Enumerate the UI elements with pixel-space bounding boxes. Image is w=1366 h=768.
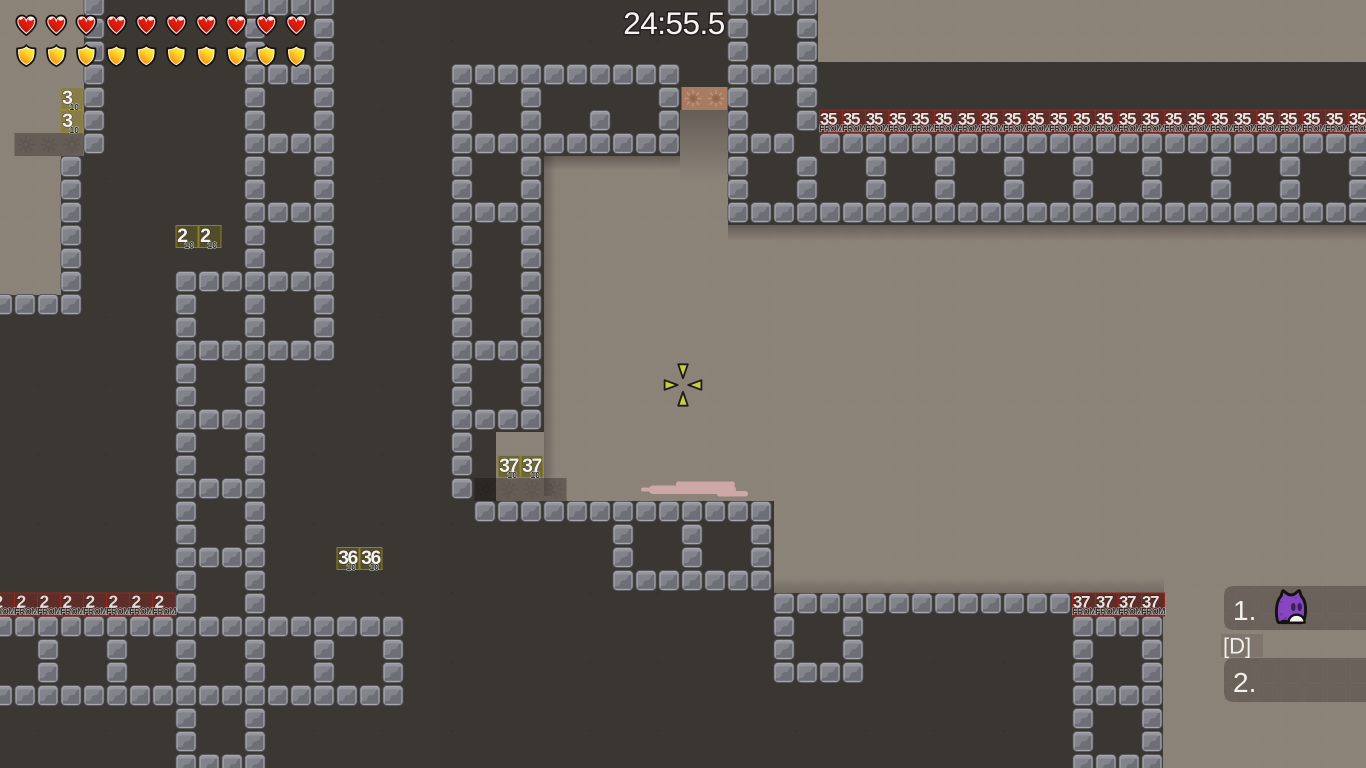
svg-text:FROM: FROM bbox=[1302, 123, 1326, 133]
svg-text:FROM: FROM bbox=[1325, 123, 1349, 133]
svg-text:FROM: FROM bbox=[934, 123, 958, 133]
svg-text:FROM: FROM bbox=[1072, 606, 1096, 616]
svg-text:FROM: FROM bbox=[129, 606, 153, 616]
svg-text:10: 10 bbox=[185, 240, 195, 250]
svg-text:24:55.5: 24:55.5 bbox=[623, 5, 725, 41]
svg-text:FROM: FROM bbox=[980, 123, 1004, 133]
svg-text:FROM: FROM bbox=[1049, 123, 1073, 133]
svg-text:2.: 2. bbox=[1233, 667, 1256, 698]
svg-text:FROM: FROM bbox=[957, 123, 981, 133]
svg-text:FROM: FROM bbox=[1141, 606, 1165, 616]
svg-text:FROM: FROM bbox=[1141, 123, 1165, 133]
svg-text:[D]: [D] bbox=[1223, 634, 1251, 659]
svg-text:FROM: FROM bbox=[1256, 123, 1280, 133]
svg-text:FROM: FROM bbox=[1233, 123, 1257, 133]
svg-text:10: 10 bbox=[370, 562, 380, 572]
svg-text:FROM: FROM bbox=[0, 606, 15, 616]
svg-text:FROM: FROM bbox=[911, 123, 935, 133]
svg-text:FROM: FROM bbox=[888, 123, 912, 133]
svg-text:10: 10 bbox=[347, 562, 357, 572]
svg-text:FROM: FROM bbox=[83, 606, 107, 616]
svg-text:FROM: FROM bbox=[14, 606, 38, 616]
svg-text:FROM: FROM bbox=[1072, 123, 1096, 133]
svg-text:FROM: FROM bbox=[1118, 606, 1142, 616]
svg-text:FROM: FROM bbox=[1095, 123, 1119, 133]
svg-text:FROM: FROM bbox=[842, 123, 866, 133]
svg-text:FROM: FROM bbox=[1187, 123, 1211, 133]
svg-text:FROM: FROM bbox=[819, 123, 843, 133]
svg-text:FROM: FROM bbox=[1164, 123, 1188, 133]
svg-text:FROM: FROM bbox=[1118, 123, 1142, 133]
svg-text:FROM: FROM bbox=[60, 606, 84, 616]
svg-text:FROM: FROM bbox=[865, 123, 889, 133]
svg-text:FROM: FROM bbox=[1026, 123, 1050, 133]
svg-text:FROM: FROM bbox=[152, 606, 176, 616]
svg-text:FROM: FROM bbox=[1095, 606, 1119, 616]
svg-text:FROM: FROM bbox=[37, 606, 61, 616]
svg-text:FROM: FROM bbox=[1348, 123, 1366, 133]
svg-text:FROM: FROM bbox=[1210, 123, 1234, 133]
svg-text:FROM: FROM bbox=[1279, 123, 1303, 133]
svg-text:1.: 1. bbox=[1233, 595, 1256, 626]
svg-text:FROM: FROM bbox=[106, 606, 130, 616]
svg-text:10: 10 bbox=[208, 240, 218, 250]
svg-text:FROM: FROM bbox=[1003, 123, 1027, 133]
